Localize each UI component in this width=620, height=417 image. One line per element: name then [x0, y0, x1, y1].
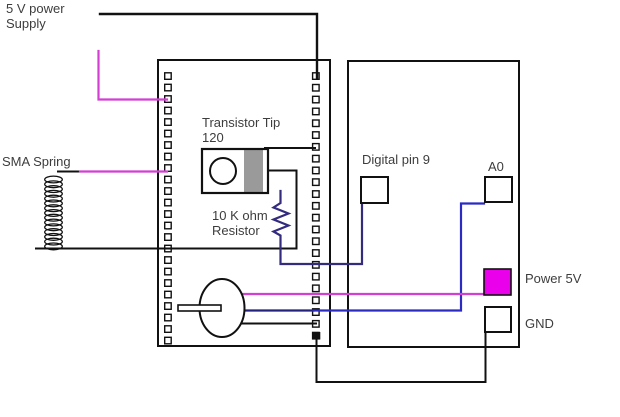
transistor-circle — [210, 158, 236, 184]
transistor-label: Transistor Tip 120 — [202, 115, 280, 145]
motor-shaft — [178, 305, 221, 311]
diagram-canvas — [0, 0, 620, 417]
gnd-label: GND — [525, 316, 554, 331]
a0-label: A0 — [488, 159, 504, 174]
sma-spring-label: SMA Spring — [2, 154, 71, 169]
gnd-rail-hole-filled — [313, 332, 321, 340]
wire-supply-magenta — [99, 51, 168, 100]
transistor-band — [244, 149, 263, 193]
sma-spring-coil — [45, 176, 63, 250]
resistor-label: 10 K ohm Resistor — [212, 208, 268, 238]
breadboard-holes-right — [313, 73, 320, 339]
digital-pin9-pad — [361, 177, 388, 203]
circuit-diagram: 5 V power Supply SMA Spring Transistor T… — [0, 0, 620, 417]
power-supply-label: 5 V power Supply — [6, 1, 65, 31]
power-5v-pad — [484, 269, 511, 295]
gnd-pad — [485, 307, 511, 332]
digital-pin9-label: Digital pin 9 — [362, 152, 430, 167]
a0-pad — [485, 177, 512, 202]
power-5v-label: Power 5V — [525, 271, 581, 286]
